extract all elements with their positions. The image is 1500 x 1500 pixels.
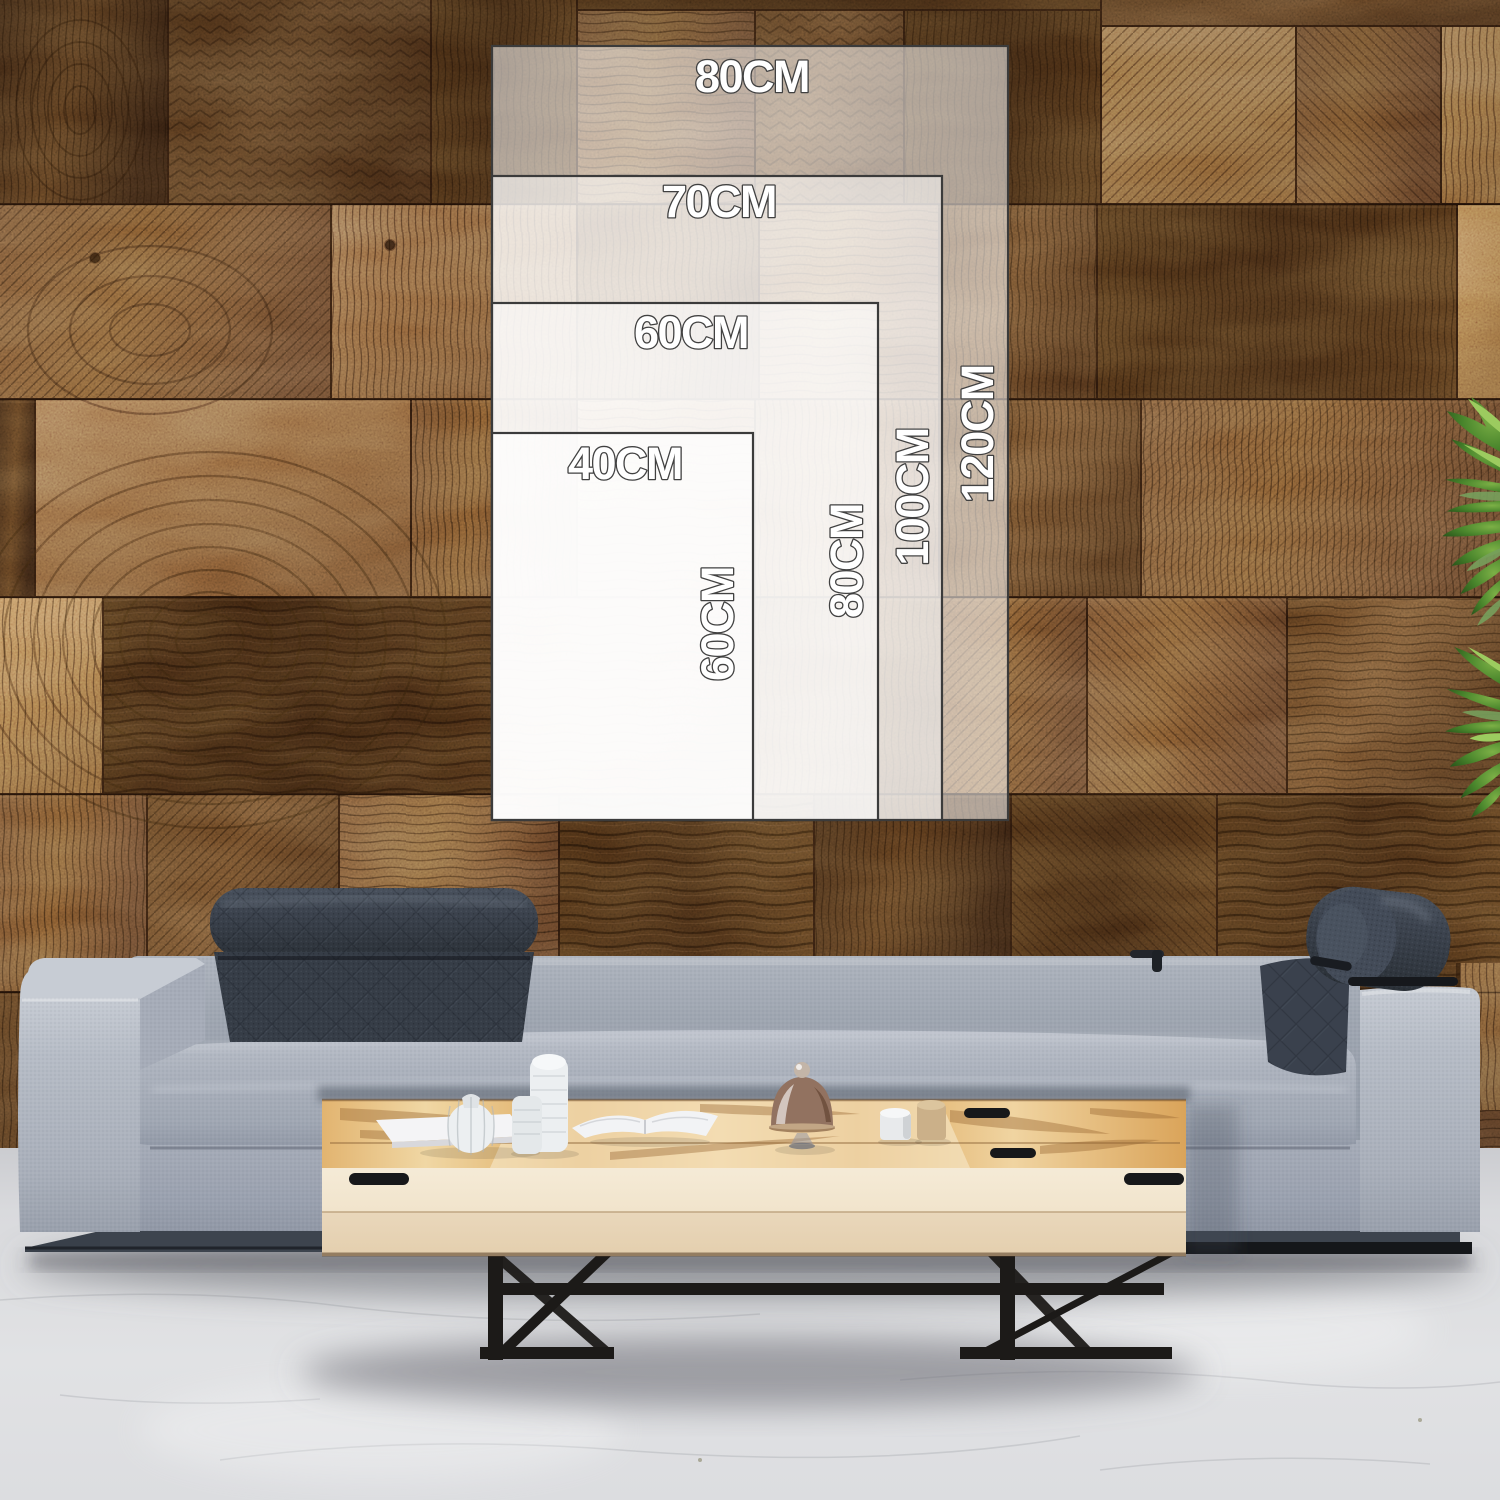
svg-text:70CM: 70CM: [662, 176, 776, 227]
svg-text:60CM: 60CM: [692, 567, 743, 681]
svg-text:120CM: 120CM: [952, 365, 1003, 503]
svg-text:40CM: 40CM: [568, 438, 682, 489]
svg-text:80CM: 80CM: [821, 504, 872, 618]
svg-text:80CM: 80CM: [695, 51, 809, 102]
svg-text:100CM: 100CM: [887, 428, 938, 566]
svg-text:60CM: 60CM: [634, 307, 748, 358]
